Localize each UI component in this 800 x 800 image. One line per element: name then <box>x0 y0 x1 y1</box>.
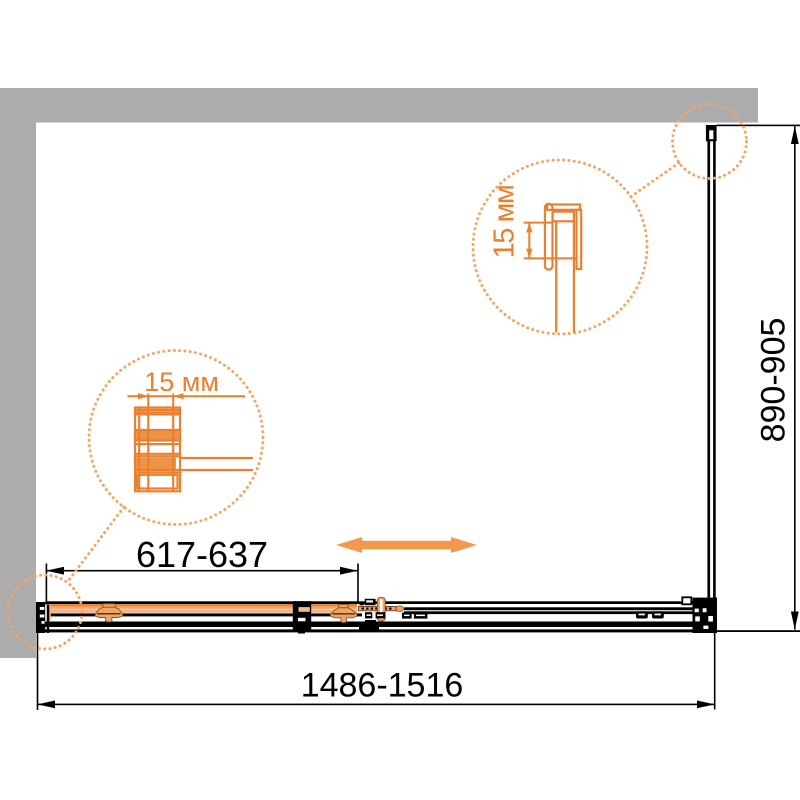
svg-text:1486-1516: 1486-1516 <box>301 667 464 705</box>
svg-text:15 мм: 15 мм <box>144 367 219 397</box>
svg-text:15 мм: 15 мм <box>489 186 521 259</box>
svg-text:890-905: 890-905 <box>755 318 793 443</box>
svg-text:617-637: 617-637 <box>136 534 268 575</box>
